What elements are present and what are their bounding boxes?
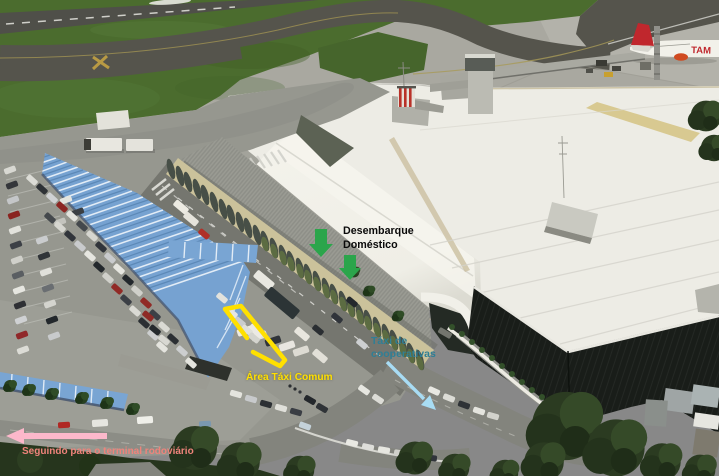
svg-text:TAM: TAM xyxy=(691,45,711,57)
